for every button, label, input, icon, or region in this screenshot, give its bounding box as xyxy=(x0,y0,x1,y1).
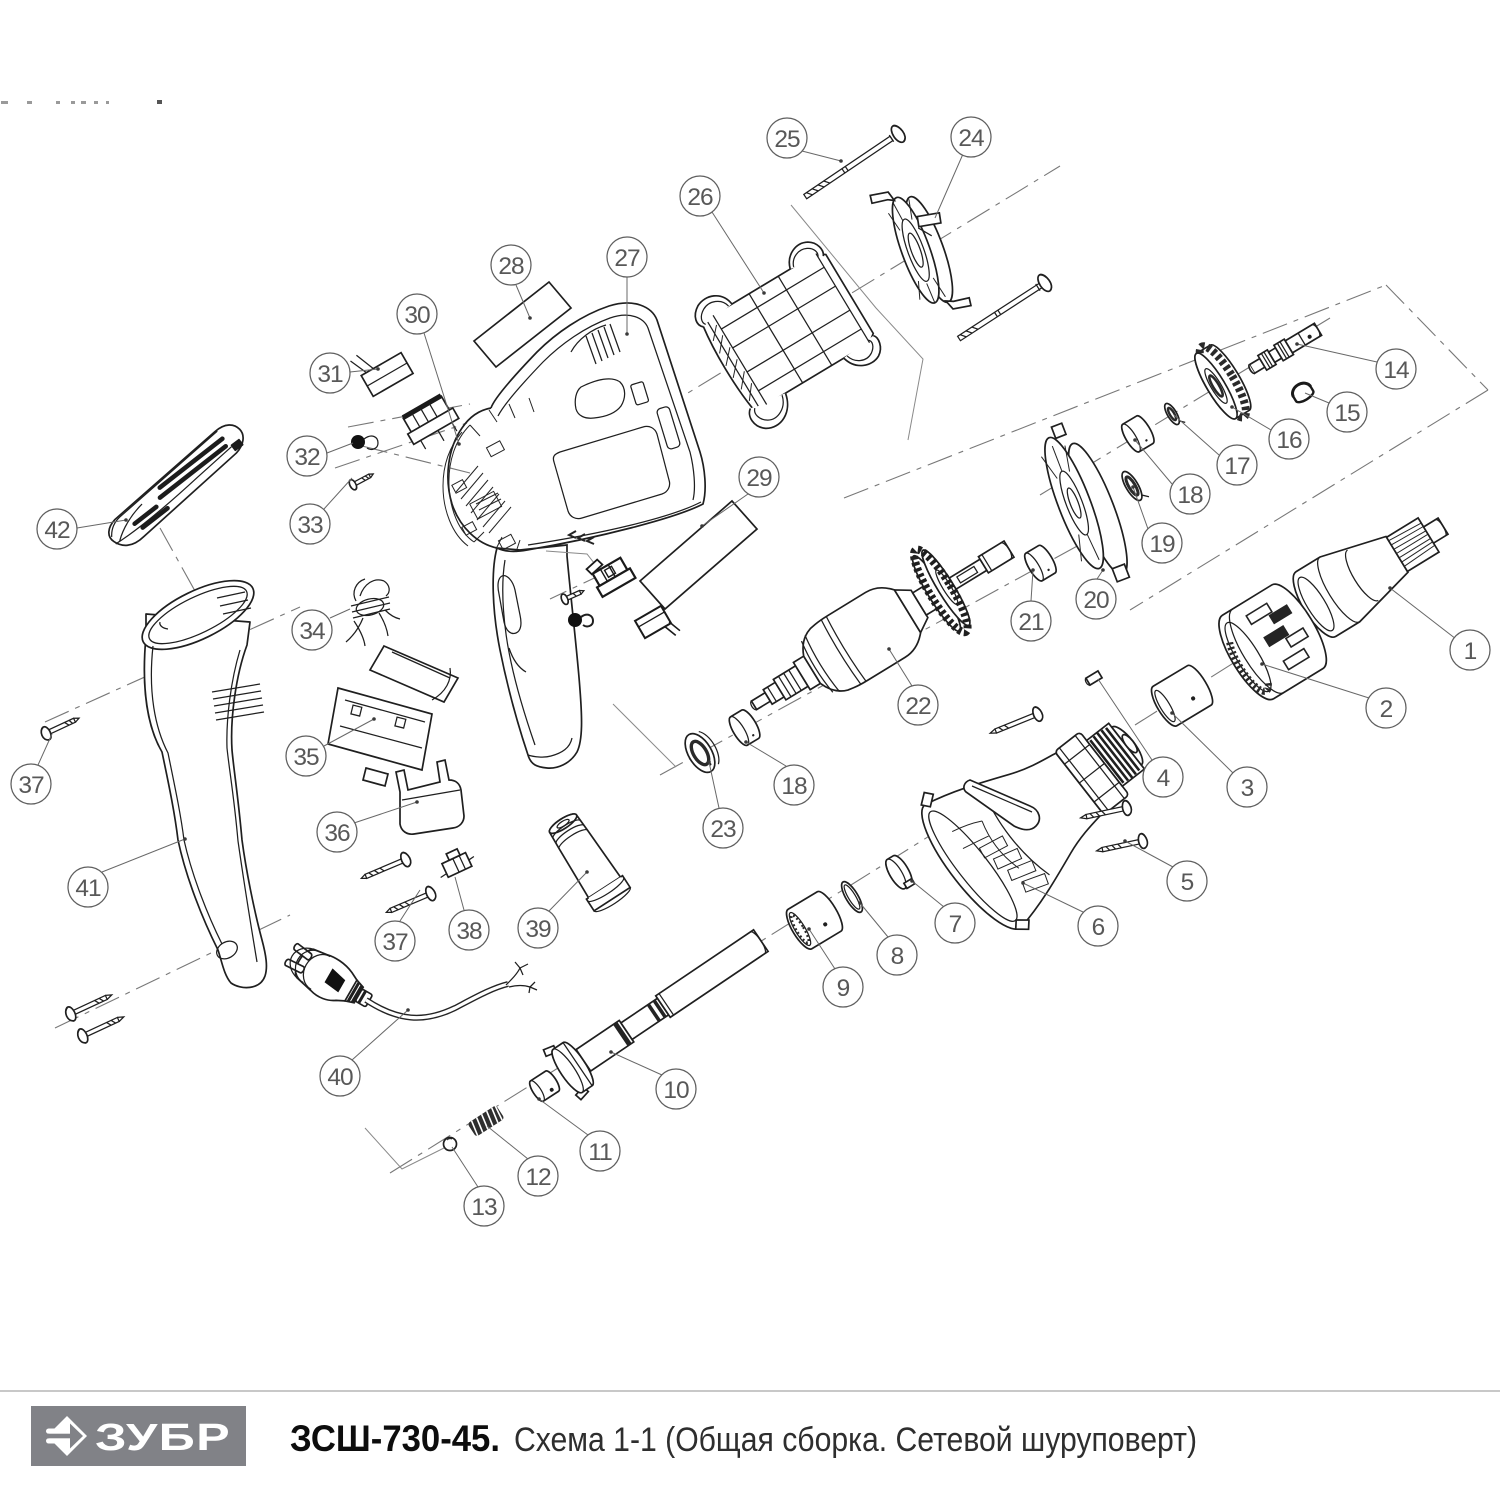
svg-text:4: 4 xyxy=(1157,765,1170,792)
svg-text:ЗСШ-730-45.: ЗСШ-730-45. xyxy=(290,1418,500,1459)
svg-text:Схема 1-1 (Общая сборка. Сетев: Схема 1-1 (Общая сборка. Сетевой шурупов… xyxy=(514,1421,1197,1459)
svg-text:17: 17 xyxy=(1224,453,1250,480)
svg-text:42: 42 xyxy=(44,517,70,544)
svg-text:38: 38 xyxy=(456,918,482,945)
svg-text:30: 30 xyxy=(404,302,430,329)
svg-text:15: 15 xyxy=(1334,400,1360,427)
svg-text:37: 37 xyxy=(382,929,408,956)
svg-text:39: 39 xyxy=(525,916,551,943)
svg-text:29: 29 xyxy=(746,465,772,492)
svg-text:3: 3 xyxy=(1241,775,1254,802)
svg-text:6: 6 xyxy=(1092,914,1105,941)
svg-text:16: 16 xyxy=(1276,427,1302,454)
svg-text:12: 12 xyxy=(525,1164,551,1191)
svg-text:ЗУБР: ЗУБР xyxy=(95,1417,231,1459)
svg-text:18: 18 xyxy=(781,773,807,800)
svg-text:5: 5 xyxy=(1181,869,1194,896)
svg-text:40: 40 xyxy=(327,1064,353,1091)
svg-text:2: 2 xyxy=(1380,696,1393,723)
svg-text:23: 23 xyxy=(710,816,736,843)
svg-text:7: 7 xyxy=(949,911,962,938)
svg-text:9: 9 xyxy=(837,975,850,1002)
svg-text:25: 25 xyxy=(774,126,800,153)
svg-text:13: 13 xyxy=(471,1194,497,1221)
svg-text:18: 18 xyxy=(1177,482,1203,509)
svg-text:32: 32 xyxy=(294,444,320,471)
svg-text:36: 36 xyxy=(324,820,350,847)
svg-text:11: 11 xyxy=(588,1139,612,1166)
svg-text:31: 31 xyxy=(317,361,343,388)
svg-text:20: 20 xyxy=(1083,587,1109,614)
svg-text:33: 33 xyxy=(297,512,323,539)
svg-text:19: 19 xyxy=(1149,531,1175,558)
svg-text:37: 37 xyxy=(18,772,44,799)
svg-text:34: 34 xyxy=(299,618,325,645)
svg-text:24: 24 xyxy=(958,125,984,152)
svg-text:1: 1 xyxy=(1464,638,1477,665)
svg-text:10: 10 xyxy=(663,1077,689,1104)
svg-text:41: 41 xyxy=(75,875,101,902)
svg-text:27: 27 xyxy=(614,245,640,272)
svg-text:14: 14 xyxy=(1383,357,1409,384)
svg-text:8: 8 xyxy=(891,943,904,970)
svg-text:35: 35 xyxy=(293,744,319,771)
svg-text:21: 21 xyxy=(1018,609,1044,636)
svg-text:26: 26 xyxy=(687,184,713,211)
svg-text:22: 22 xyxy=(905,693,931,720)
svg-text:28: 28 xyxy=(498,253,524,280)
